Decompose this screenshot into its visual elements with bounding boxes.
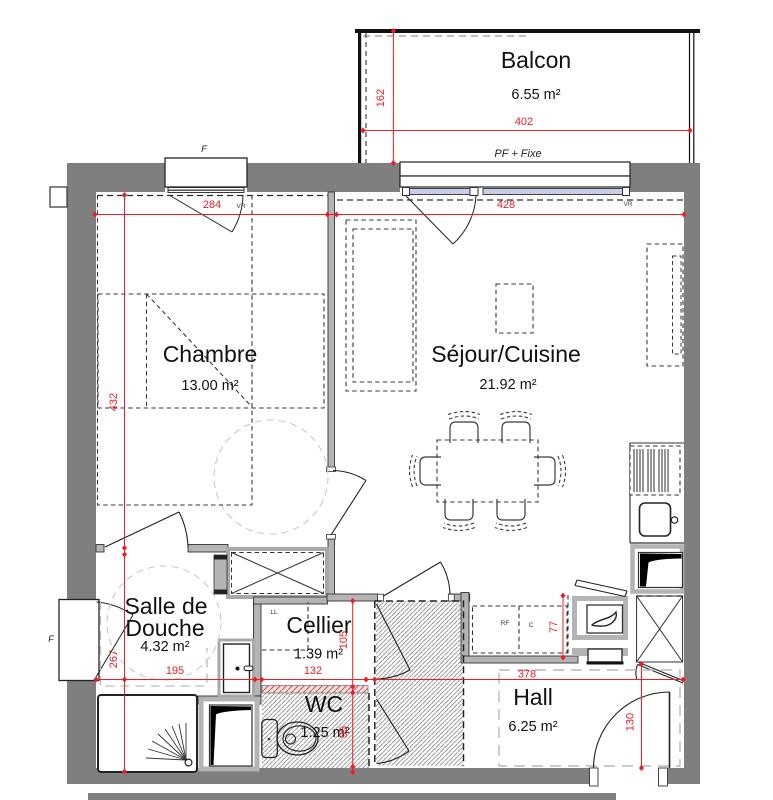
svg-text:Douche: Douche [125,615,204,641]
svg-text:95: 95 [338,726,350,738]
svg-text:105: 105 [338,631,350,649]
svg-text:267: 267 [108,650,120,668]
svg-text:VR: VR [236,203,245,210]
svg-text:6.55 m²: 6.55 m² [511,87,560,103]
svg-text:RF: RF [501,620,510,627]
svg-text:378: 378 [518,669,536,681]
svg-text:Séjour/Cuisine: Séjour/Cuisine [431,341,581,367]
svg-text:13.00 m²: 13.00 m² [181,378,238,394]
svg-text:F: F [48,634,54,644]
svg-text:WC: WC [305,691,343,717]
svg-text:77: 77 [548,621,560,633]
svg-text:6.25 m²: 6.25 m² [508,719,557,735]
svg-text:162: 162 [375,89,387,107]
svg-text:284: 284 [203,199,221,211]
svg-text:VR: VR [623,201,632,208]
svg-text:PF + Fixe: PF + Fixe [494,148,541,160]
svg-text:130: 130 [625,713,637,731]
svg-text:132: 132 [304,665,322,677]
svg-text:Hall: Hall [513,684,553,710]
svg-text:21.92 m²: 21.92 m² [479,377,536,393]
svg-text:Balcon: Balcon [501,47,571,73]
svg-text:402: 402 [515,116,533,128]
svg-text:432: 432 [108,393,120,411]
svg-text:4.32 m²: 4.32 m² [140,639,189,655]
svg-text:C: C [529,622,534,629]
svg-text:LL: LL [270,609,278,616]
svg-text:428: 428 [497,199,515,211]
svg-text:195: 195 [166,665,184,677]
svg-text:Chambre: Chambre [163,341,258,367]
svg-text:1.39 m²: 1.39 m² [294,647,343,663]
